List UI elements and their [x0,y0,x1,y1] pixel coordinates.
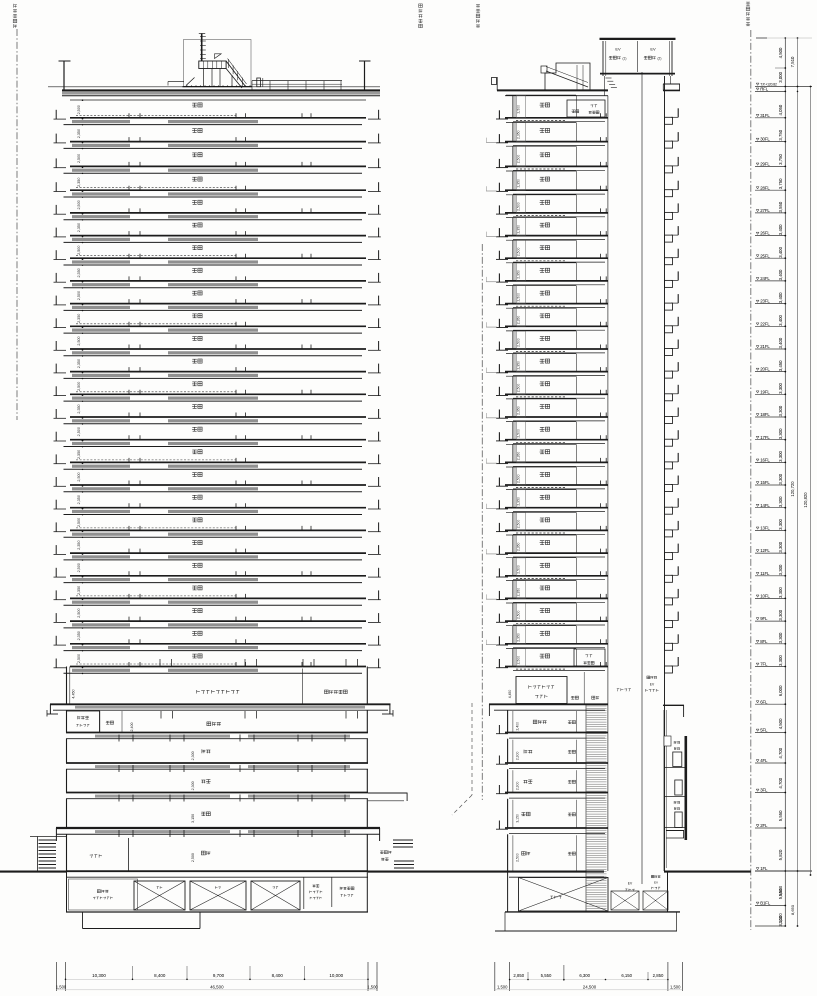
svg-text:2,350: 2,350 [517,452,521,461]
svg-text:2,500: 2,500 [517,293,521,302]
svg-text:2,350: 2,350 [517,316,521,325]
svg-text:4,500: 4,500 [778,718,783,729]
svg-text:24,500: 24,500 [583,984,597,989]
svg-text:18FL: 18FL [760,412,770,417]
svg-text:2,500: 2,500 [517,202,521,211]
svg-text:3,400: 3,400 [778,292,783,303]
svg-text:2,350: 2,350 [517,633,521,642]
svg-text:2,500: 2,500 [77,654,81,663]
svg-text:2,500: 2,500 [77,382,81,391]
svg-text:3,300: 3,300 [778,383,783,394]
svg-text:3,300: 3,300 [778,473,783,484]
svg-text:4,500: 4,500 [778,47,783,58]
svg-text:2,500: 2,500 [77,154,81,163]
svg-text:2,350: 2,350 [77,129,81,138]
svg-text:1,500: 1,500 [497,984,508,989]
svg-text:5,550: 5,550 [778,885,783,896]
svg-text:2,500: 2,500 [517,384,521,393]
svg-text:2,350: 2,350 [77,586,81,595]
svg-text:4,450: 4,450 [508,690,512,699]
svg-text:5,550: 5,550 [541,973,552,978]
svg-text:2,500: 2,500 [77,291,81,300]
svg-text:12FL: 12FL [760,548,770,553]
svg-text:28FL: 28FL [760,185,770,190]
svg-text:30FL: 30FL [760,137,770,142]
svg-text:2,350: 2,350 [517,361,521,370]
svg-text:EV: EV [615,47,621,52]
svg-text:3,000: 3,000 [778,71,783,82]
svg-text:2,350: 2,350 [77,223,81,232]
svg-text:8,400: 8,400 [272,973,284,978]
svg-text:1,500: 1,500 [56,984,67,989]
svg-text:2,500: 2,500 [516,853,520,862]
svg-text:2,500: 2,500 [191,853,195,862]
svg-text:3,400: 3,400 [778,337,783,348]
svg-text:3,300: 3,300 [778,609,783,620]
svg-text:2,500: 2,500 [77,608,81,617]
svg-text:3,750: 3,750 [778,129,783,140]
svg-text:EV: EV [650,47,656,52]
svg-text:16FL: 16FL [760,458,770,463]
svg-text:1,500: 1,500 [670,984,681,989]
svg-text:6,300: 6,300 [579,973,590,978]
svg-text:4,050: 4,050 [778,104,783,115]
svg-text:3,450: 3,450 [778,360,783,371]
svg-text:2,400: 2,400 [516,722,520,731]
svg-text:3,150: 3,150 [191,814,195,823]
svg-text:2,500: 2,500 [517,429,521,438]
svg-text:3,150: 3,150 [516,814,520,823]
svg-text:2,300: 2,300 [516,782,520,791]
svg-text:11FL: 11FL [760,571,770,576]
svg-text:2,500: 2,500 [517,105,521,114]
svg-text:2,300: 2,300 [191,781,195,790]
svg-text:2,350: 2,350 [77,404,81,413]
svg-text:7,510: 7,510 [790,56,795,67]
svg-text:20FL: 20FL [760,367,770,372]
svg-text:4,700: 4,700 [778,747,783,758]
svg-text:2,500: 2,500 [517,610,521,619]
svg-text:5,550: 5,550 [778,810,783,821]
svg-text:6,150: 6,150 [621,973,632,978]
svg-text:29FL: 29FL [760,162,770,167]
svg-text:3,750: 3,750 [778,178,783,189]
svg-text:3,300: 3,300 [778,587,783,598]
svg-text:RFL: RFL [760,87,769,92]
svg-text:3,400: 3,400 [778,246,783,257]
svg-text:26FL: 26FL [760,231,770,236]
svg-text:10FL: 10FL [760,594,770,599]
svg-text:25FL: 25FL [760,253,770,258]
svg-text:21FL: 21FL [760,344,770,349]
svg-text:9FL: 9FL [760,616,768,621]
svg-text:2,500: 2,500 [517,248,521,257]
svg-text:2,350: 2,350 [77,178,81,187]
svg-text:3,100: 3,100 [778,913,783,924]
svg-text:1,500: 1,500 [367,984,378,989]
svg-text:2,350: 2,350 [517,270,521,279]
svg-text:2,300: 2,300 [516,752,520,761]
svg-text:13FL: 13FL [760,526,770,531]
svg-text:2,500: 2,500 [77,472,81,481]
svg-text:3,300: 3,300 [778,451,783,462]
svg-text:B1FL: B1FL [760,901,771,906]
svg-text:EV: EV [654,881,658,885]
svg-text:3,750: 3,750 [778,154,783,165]
svg-text:2,500: 2,500 [517,520,521,529]
svg-text:(2): (2) [658,57,662,61]
svg-text:6FL: 6FL [760,699,768,704]
svg-text:2,350: 2,350 [77,268,81,277]
svg-text:2,350: 2,350 [517,497,521,506]
svg-text:2,500: 2,500 [517,338,521,347]
svg-text:3,300: 3,300 [778,405,783,416]
svg-text:3,300: 3,300 [778,541,783,552]
svg-text:2,350: 2,350 [517,225,521,234]
svg-text:2,350: 2,350 [77,359,81,368]
svg-text:3,300: 3,300 [778,564,783,575]
svg-text:2FL: 2FL [760,823,768,828]
svg-text:2,400: 2,400 [130,723,134,732]
svg-text:2,350: 2,350 [77,495,81,504]
svg-text:120,720: 120,720 [790,481,795,497]
svg-text:4,450: 4,450 [72,689,76,698]
svg-text:3FL: 3FL [760,788,768,793]
svg-text:19FL: 19FL [760,389,770,394]
svg-text:3,300: 3,300 [778,655,783,666]
svg-text:3,400: 3,400 [778,315,783,326]
svg-text:3,300: 3,300 [778,519,783,530]
svg-text:2,350: 2,350 [517,130,521,139]
svg-text:1FL: 1FL [760,866,768,871]
svg-text:2,350: 2,350 [517,588,521,597]
svg-text:4FL: 4FL [760,758,768,763]
svg-text:10,000: 10,000 [329,973,343,978]
svg-text:2,350: 2,350 [517,406,521,415]
svg-text:2,350: 2,350 [77,631,81,640]
svg-text:8FL: 8FL [760,639,768,644]
svg-text:2,500: 2,500 [77,105,81,114]
svg-text:46,500: 46,500 [210,984,224,989]
svg-text:2,850: 2,850 [653,973,664,978]
svg-text:2,350: 2,350 [77,314,81,323]
svg-text:3,550: 3,550 [778,201,783,212]
svg-text:22FL: 22FL [760,321,770,326]
svg-text:2,500: 2,500 [77,336,81,345]
svg-text:2,350: 2,350 [77,450,81,459]
svg-text:3,400: 3,400 [778,224,783,235]
svg-text:2,500: 2,500 [77,563,81,572]
svg-text:27FL: 27FL [760,208,770,213]
svg-text:2,500: 2,500 [517,155,521,164]
svg-text:3,300: 3,300 [778,632,783,643]
svg-text:2,850: 2,850 [513,973,524,978]
svg-text:14FL: 14FL [760,503,770,508]
svg-text:9,700: 9,700 [213,973,225,978]
svg-text:15FL: 15FL [760,480,770,485]
svg-text:3,400: 3,400 [778,269,783,280]
svg-text:3,300: 3,300 [778,428,783,439]
svg-text:8,400: 8,400 [154,973,166,978]
svg-text:5,820: 5,820 [778,849,783,860]
svg-text:3,300: 3,300 [778,496,783,507]
svg-text:5FL: 5FL [760,728,768,733]
svg-text:6,000: 6,000 [778,685,783,696]
svg-text:2,500: 2,500 [77,427,81,436]
svg-text:23FL: 23FL [760,299,770,304]
svg-text:2,350: 2,350 [517,179,521,188]
svg-text:2,500: 2,500 [77,246,81,255]
svg-text:120,820: 120,820 [803,492,808,508]
svg-text:2,350: 2,350 [517,542,521,551]
svg-text:10,300: 10,300 [92,973,106,978]
svg-text:2,500: 2,500 [517,474,521,483]
svg-text:(1): (1) [623,57,627,61]
svg-text:4,700: 4,700 [778,777,783,788]
svg-text:17FL: 17FL [760,435,770,440]
svg-text:8,650: 8,650 [790,904,795,915]
svg-text:2,500: 2,500 [77,200,81,209]
svg-text:31FL: 31FL [760,113,770,118]
svg-text:2,300: 2,300 [191,751,195,760]
svg-text:7FL: 7FL [760,662,768,667]
svg-text:2,350: 2,350 [77,540,81,549]
svg-text:24FL: 24FL [760,276,770,281]
svg-text:2,500: 2,500 [517,656,521,665]
svg-text:2,500: 2,500 [77,518,81,527]
svg-text:2,500: 2,500 [517,565,521,574]
